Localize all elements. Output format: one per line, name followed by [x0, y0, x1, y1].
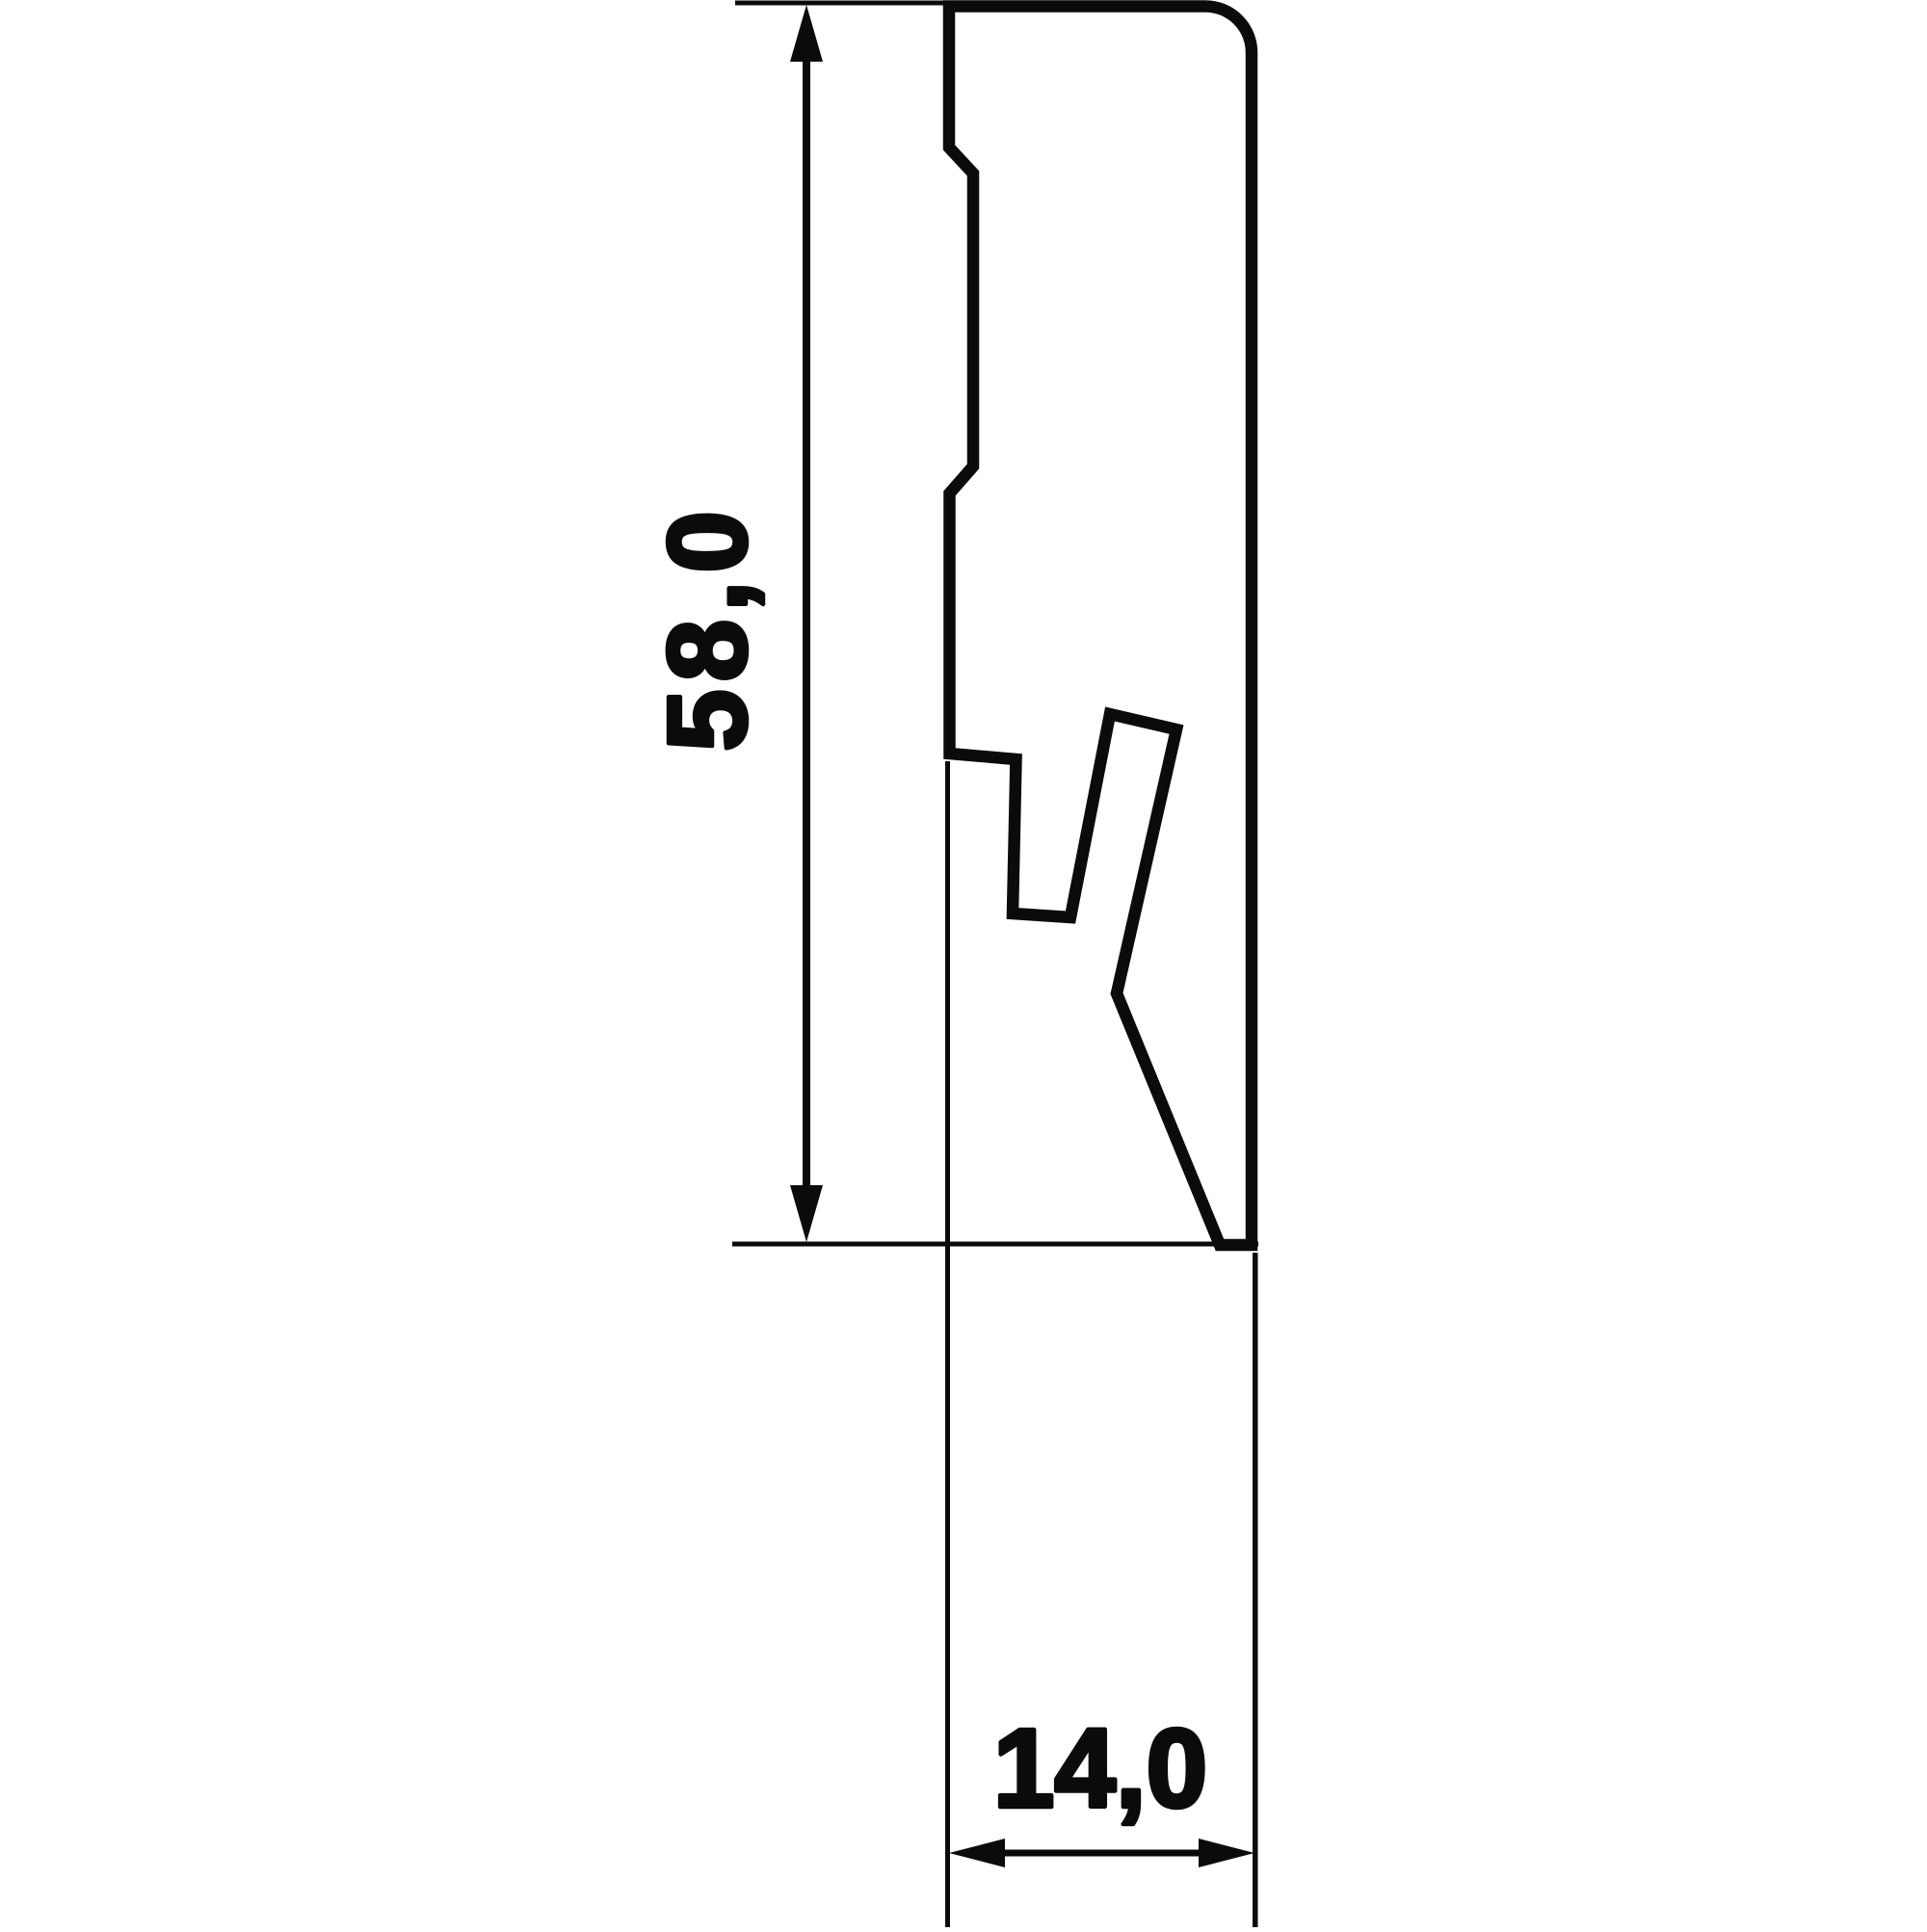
svg-text:14,0: 14,0 — [993, 1707, 1207, 1831]
svg-text:58,0: 58,0 — [645, 503, 770, 752]
